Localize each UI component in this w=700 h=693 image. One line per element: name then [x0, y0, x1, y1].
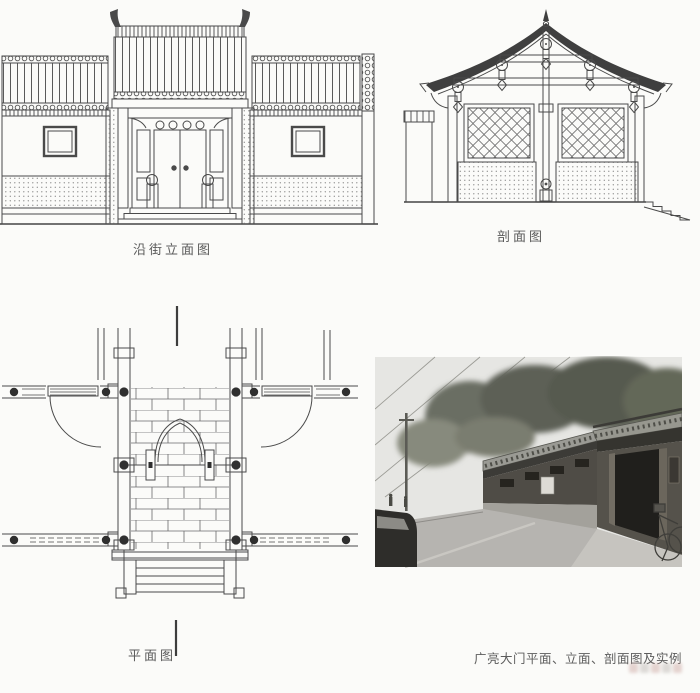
gate-left-pillar [118, 108, 128, 208]
right-room-door-swing [261, 396, 312, 447]
wall-sign [541, 477, 554, 494]
left-wall-face [2, 116, 110, 176]
roof-left-slope [426, 23, 546, 92]
book-page: 沿街立面图 [0, 0, 700, 693]
right-wall-brick-base [250, 176, 362, 208]
gate-eave-beam [112, 99, 248, 108]
right-wall-face [250, 116, 362, 176]
right-wall-drip-tiles [252, 103, 360, 110]
gate-bay [106, 9, 254, 224]
left-wall-tile-caps [2, 56, 108, 63]
left-room-door-swing [50, 396, 101, 447]
gate-ridge [116, 26, 244, 37]
right-wall-plinth [250, 208, 362, 224]
left-window-inner [48, 131, 72, 152]
gate-opening [615, 449, 659, 539]
door-handle-left [172, 166, 176, 170]
central-post [539, 30, 553, 201]
ridge-end-right [239, 9, 250, 27]
right-window-inner [296, 131, 320, 152]
right-steps [644, 202, 690, 220]
right-room-door-leaf [262, 386, 312, 396]
left-boundary-wall [404, 111, 434, 202]
street-elevation-figure [0, 6, 380, 236]
right-wall-tile-caps [252, 56, 360, 63]
right-wall-roof-tiles [252, 63, 360, 103]
right-wall-dentils [250, 110, 362, 116]
plan-label: 平面图 [128, 645, 176, 664]
door-bosses [156, 121, 204, 129]
side-panel-right [210, 130, 223, 172]
ridge-end-left [110, 9, 121, 27]
gate-left-brick-pier [106, 108, 118, 224]
roof-right-slope [546, 23, 666, 92]
left-room-door-leaf [48, 386, 98, 396]
left-wall-drip-tiles [2, 103, 108, 110]
plan-figure [0, 300, 360, 660]
left-wall-dentils [2, 110, 110, 116]
street-photo [375, 356, 682, 568]
plan-drawing [0, 300, 360, 660]
right-wall [250, 54, 374, 224]
gate-right-brick-pier [242, 108, 254, 224]
left-wall-plinth [2, 208, 110, 224]
parked-car [375, 509, 417, 567]
brick-base [458, 162, 638, 202]
gate-roof-tiles [114, 37, 246, 92]
elevation-label: 沿街立面图 [133, 239, 213, 258]
side-panel-left-lower [137, 178, 150, 200]
left-wall [2, 56, 110, 224]
section-label: 剖面图 [497, 226, 545, 245]
watermark [628, 661, 694, 687]
left-wall-roof-tiles [2, 63, 108, 103]
section-drawing [396, 8, 696, 230]
gate-drip-tiles [114, 92, 246, 99]
wall-end-ridge [362, 54, 374, 111]
gate-lintel [128, 108, 232, 118]
gate-right-pillar [232, 108, 242, 208]
gate-lattice-window [669, 457, 679, 483]
gate-steps [118, 208, 242, 224]
entrance-steps [112, 550, 248, 598]
lower-beam [454, 78, 638, 85]
side-panel-right-lower [210, 178, 223, 200]
street-elevation-drawing [0, 6, 380, 236]
lattice-panels [464, 104, 628, 162]
door-handle-right [184, 166, 188, 170]
example-photo [375, 356, 682, 566]
side-panel-left [137, 130, 150, 172]
left-wall-brick-base [2, 176, 110, 208]
section-figure [396, 8, 696, 230]
